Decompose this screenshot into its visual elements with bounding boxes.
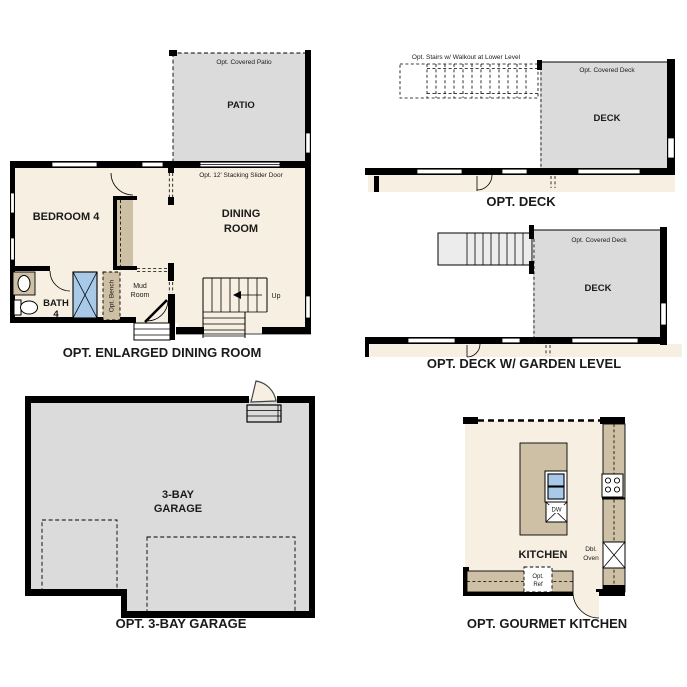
bath-vanity-sink bbox=[13, 272, 35, 295]
opt-ref-label-line1: Opt. bbox=[532, 574, 544, 580]
bottom-counter: Opt. Ref bbox=[467, 567, 573, 592]
opt-ref-label-line2: Ref bbox=[533, 582, 543, 588]
stairs-walkout-note: Opt. Stairs w/ Walkout at Lower Level bbox=[412, 54, 521, 61]
entry-steps bbox=[134, 323, 170, 340]
dbl-oven-label-line2: Oven bbox=[583, 555, 599, 562]
garage-label-line1: 3-BAY bbox=[162, 489, 195, 501]
slider-door-note: Opt. 12' Stacking Slider Door bbox=[199, 172, 283, 179]
plan-gourmet-kitchen: DW Opt. Ref KITCHEN Dbl. Oven OPT. GOURM… bbox=[463, 417, 627, 631]
kitchen-label: KITCHEN bbox=[519, 549, 568, 561]
caption-opt-deck: OPT. DECK bbox=[486, 194, 556, 209]
covered-deck-note: Opt. Covered Deck bbox=[571, 237, 627, 244]
stacking-slider-door bbox=[200, 162, 280, 167]
dining-label-line1: DINING bbox=[222, 208, 261, 220]
garden-stairs bbox=[438, 233, 532, 265]
mudroom-label-line2: Room bbox=[131, 292, 150, 299]
entry-door-swing bbox=[251, 381, 276, 402]
dishwasher-label: DW bbox=[552, 508, 562, 514]
bath4-label-line2: 4 bbox=[53, 309, 59, 320]
dbl-oven-label-line1: Dbl. bbox=[585, 546, 597, 553]
caption-deck-garden: OPT. DECK W/ GARDEN LEVEL bbox=[427, 356, 621, 371]
plan-deck-garden-level: Opt. Covered Deck DECK OPT. DECK W/ GARD… bbox=[365, 225, 682, 371]
cooktop bbox=[602, 474, 625, 499]
bedroom4-label: BEDROOM 4 bbox=[33, 211, 101, 223]
covered-patio-note: Opt. Covered Patio bbox=[216, 59, 272, 66]
covered-deck-note: Opt. Covered Deck bbox=[579, 67, 635, 74]
deck-label: DECK bbox=[594, 113, 621, 124]
mudroom-label-line1: Mud bbox=[133, 283, 147, 290]
bath4-label-line1: BATH bbox=[43, 298, 69, 309]
patio-label: PATIO bbox=[227, 100, 255, 111]
floorplan-drawing: Opt. Covered Patio PATIO Opt. 12' Stacki… bbox=[0, 0, 687, 687]
caption-gourmet-kitchen: OPT. GOURMET KITCHEN bbox=[467, 616, 627, 631]
plan-3-bay-garage: 3-BAY GARAGE OPT. 3-BAY GARAGE bbox=[25, 381, 315, 631]
plan-enlarged-dining-room: Opt. Covered Patio PATIO Opt. 12' Stacki… bbox=[10, 50, 311, 360]
plan-opt-deck: Opt. Stairs w/ Walkout at Lower Level Op… bbox=[365, 54, 675, 209]
double-oven bbox=[603, 542, 625, 568]
opt-refrigerator: Opt. Ref bbox=[524, 567, 552, 592]
garage-label-line2: GARAGE bbox=[154, 503, 202, 515]
dining-label-line2: ROOM bbox=[224, 223, 258, 235]
shower bbox=[73, 272, 97, 318]
dishwasher: DW bbox=[546, 502, 567, 522]
deck-label: DECK bbox=[585, 283, 612, 294]
island-sink bbox=[545, 471, 567, 502]
entry-steps bbox=[247, 405, 281, 422]
up-label: Up bbox=[272, 293, 281, 300]
opt-stairs-walkout bbox=[400, 64, 538, 98]
kitchen-island: DW bbox=[520, 443, 567, 535]
caption-3-bay-garage: OPT. 3-BAY GARAGE bbox=[116, 616, 247, 631]
caption-enlarged-dining: OPT. ENLARGED DINING ROOM bbox=[63, 345, 262, 360]
toilet bbox=[14, 300, 38, 315]
opt-bench-label: Opt. Bench bbox=[109, 279, 116, 312]
kitchen-door-swing bbox=[573, 592, 599, 618]
floorplan-options-sheet: Opt. Covered Patio PATIO Opt. 12' Stacki… bbox=[0, 0, 687, 687]
